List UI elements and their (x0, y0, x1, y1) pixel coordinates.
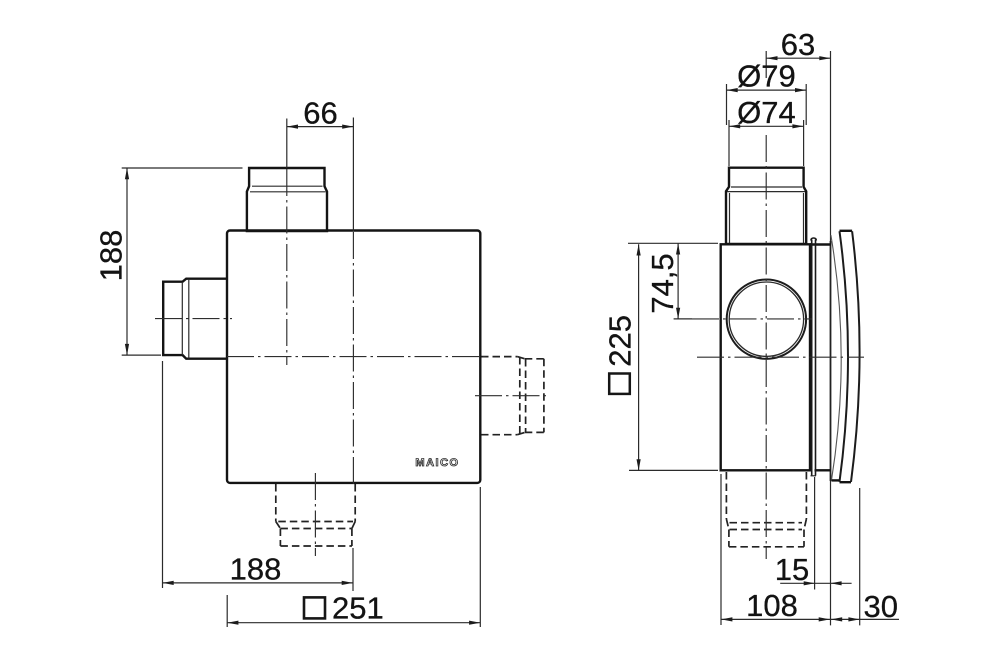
svg-text:188: 188 (94, 230, 129, 282)
svg-text:15: 15 (775, 552, 809, 587)
svg-text:74,5: 74,5 (645, 253, 680, 313)
svg-text:225: 225 (602, 315, 637, 367)
svg-text:30: 30 (864, 589, 898, 624)
svg-text:63: 63 (781, 27, 815, 62)
svg-text:251: 251 (332, 591, 384, 626)
svg-text:108: 108 (746, 588, 798, 623)
svg-text:Ø74: Ø74 (737, 95, 796, 130)
svg-text:188: 188 (230, 552, 282, 587)
svg-text:Ø79: Ø79 (737, 59, 796, 94)
svg-text:66: 66 (303, 96, 337, 131)
svg-text:MAICO: MAICO (415, 457, 459, 469)
